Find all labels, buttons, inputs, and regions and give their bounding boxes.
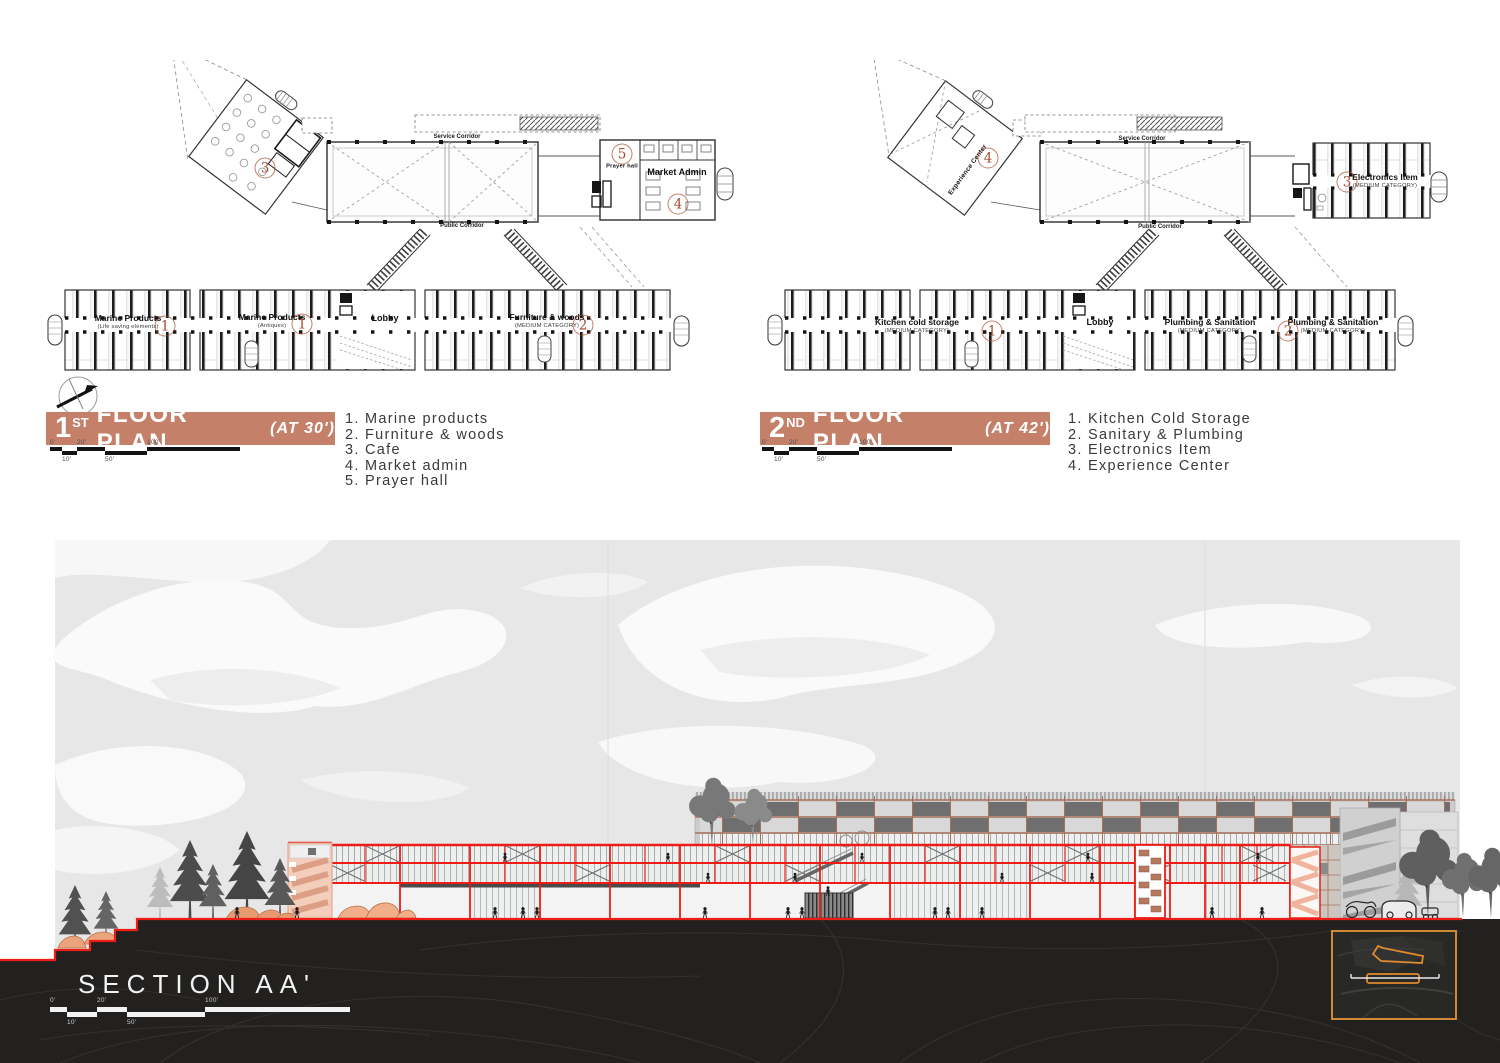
plan1-num-1b: 1 [292,314,313,335]
plan1-lobby-label: Lobby [372,313,399,323]
plan1-public-corridor-label: Public Corridor [440,223,484,229]
plan1-legend: 1. Marine products 2. Furniture & woods … [345,412,505,490]
key-map [1331,930,1457,1020]
plan1-num-1a: 1 [155,316,176,337]
sectioned-market-building [288,831,1320,918]
plan1-marine1-label: Marine Products (Life saving elements) [95,314,162,330]
plan1-service-corridor-label: Service Corridor [433,134,480,140]
plan2-num-3: 3 [1337,172,1358,193]
plan2-num-2: 2 [1278,321,1299,342]
legend-item: 1. Marine products [345,412,505,428]
legend-item: 3. Electronics Item [1068,443,1251,459]
legend-item: 3. Cafe [345,443,505,459]
legend-item: 1. Kitchen Cold Storage [1068,412,1251,428]
plan1-num-3: 3 [255,158,276,179]
plan1-prayer-label: Prayer hall [606,164,638,171]
plan1-num-5: 5 [612,144,633,165]
legend-item: 2. Sanitary & Plumbing [1068,428,1251,444]
legend-item: 4. Market admin [345,459,505,475]
plan2-num-4: 4 [978,148,999,169]
plan2-drawing [755,60,1475,410]
plan2-title-number: 2 [769,414,785,443]
legend-item: 2. Furniture & woods [345,428,505,444]
plan1-drawing [40,60,750,420]
section-title: SECTION AA' [78,969,316,1000]
presentation-board: Service Corridor Public Corridor Marine … [0,0,1500,1063]
plan2-service-corridor-label: Service Corridor [1118,136,1165,142]
plan2-lobby-label: Lobby [1087,317,1114,327]
plan2-public-corridor-label: Public Corridor [1138,224,1182,230]
plan1-title-number: 1 [55,414,71,443]
plan1-num-2: 2 [573,315,594,336]
north-arrow-icon [57,377,98,415]
plan2-plumbing1-label: Plumbing & Sanitation (MEDIUM CATEGORY) [1165,318,1256,334]
plan2-kitchen-label: Kitchen cold storage (MEDIUM CATEGORY) [875,318,959,334]
plan1-num-4: 4 [668,194,689,215]
plan1-scale-bar: 0' 20' 100' 10' 50' [50,440,250,468]
plan2-electronics-label: Electronics Item (MEDIUM CATEGORY) [1352,173,1418,189]
legend-item: 5. Prayer hall [345,474,505,490]
legend-item: 4. Experience Center [1068,459,1251,475]
plan2-scale-bar: 0' 20' 100' 10' 50' [762,440,962,468]
plan2-legend: 1. Kitchen Cold Storage 2. Sanitary & Pl… [1068,412,1251,474]
plan2-plumbing2-label: Plumbing & Sanitation (MEDIUM CATEGORY) [1288,318,1379,334]
section-scale-bar: 0' 20' 100' 10' 50' [48,998,360,1026]
plan2-num-1: 1 [982,321,1003,342]
plan1-market-admin-label: Market Admin [647,167,706,177]
